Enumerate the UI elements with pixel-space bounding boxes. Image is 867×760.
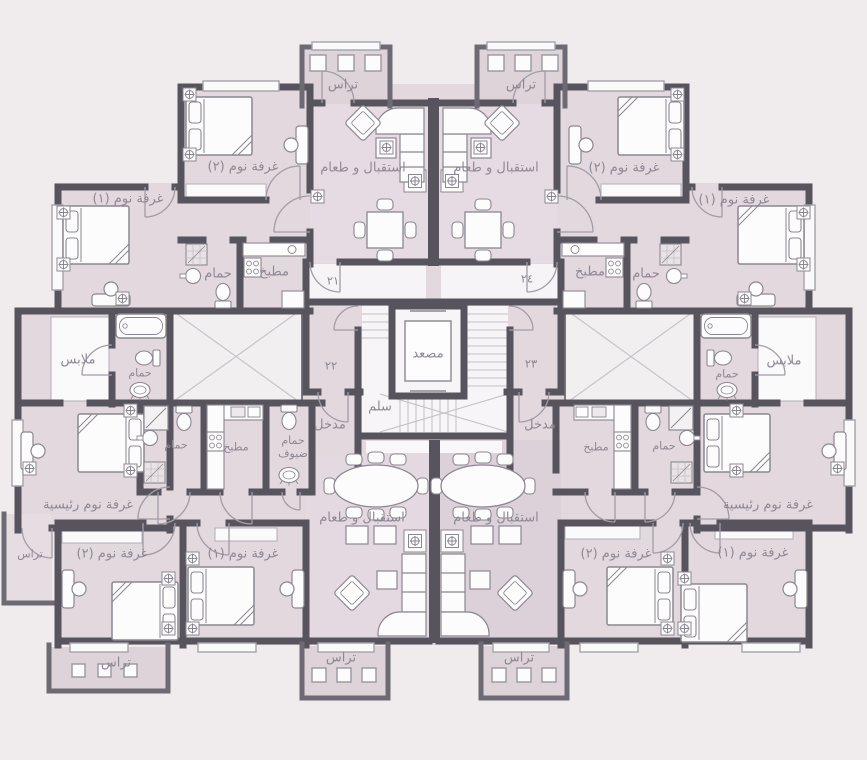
room-label-stairs: سلم: [368, 401, 392, 414]
room-label-kitchen-unit23: مطبخ: [583, 442, 608, 453]
room-label-masterbath-unit23: حمام: [715, 369, 738, 380]
room-label-terrace-bottom-center-right: تراس: [504, 652, 534, 665]
room-label-dressing-unit22: ملابس: [61, 354, 96, 367]
room-label-kitchen-unit24: مطبخ: [575, 266, 605, 279]
floor-plan-page: تراس تراس غرفة نوم (٢) غرفة نوم (١) استق…: [0, 0, 867, 760]
unit-number-24: ٢٤: [521, 273, 533, 285]
room-label-guestbath-unit22: حمام ضيوف: [269, 434, 317, 460]
room-label-terrace-bottom-center-left: تراس: [326, 652, 356, 665]
divider-wall-bottom: [429, 440, 440, 643]
room-label-bedroom1-unit22: غرفة نوم (١): [208, 548, 279, 561]
divider-wall-top: [428, 98, 439, 266]
room-label-bath-unit22: حمام: [164, 440, 187, 451]
room-label-bedroom2-unit22: غرفة نوم (٢): [77, 548, 148, 561]
room-label-bedroom1-unit21: غرفة نوم (١): [93, 193, 164, 206]
room-label-dressing-unit23: ملابس: [767, 355, 802, 368]
room-label-bath-unit21: حمام: [204, 268, 232, 281]
light-shaft-right: [565, 309, 697, 404]
room-label-elevator: مصعد: [412, 348, 443, 361]
light-shaft-left: [170, 309, 302, 404]
room-label-terrace-top-right: تراس: [506, 79, 536, 92]
room-label-masterbath-unit22: حمام: [128, 368, 151, 379]
room-label-entrance-unit22: مدخل: [314, 419, 346, 432]
room-label-bath-unit23: حمام: [652, 441, 675, 452]
room-label-reception-unit23: استقبال و طعام: [453, 512, 539, 525]
room-label-master-unit22: غرفة نوم رئيسية: [43, 499, 133, 512]
room-label-kitchen-unit21: مطبخ: [259, 266, 289, 279]
room-label-reception-unit24: استقبال و طعام: [453, 162, 539, 175]
room-label-kitchen-unit22: مطبخ: [223, 442, 248, 453]
room-label-master-unit23: غرفة نوم رئيسية: [723, 499, 813, 512]
room-label-bedroom1-unit23: غرفة نوم (١): [718, 547, 789, 560]
room-label-terrace-top-left: تراس: [328, 79, 358, 92]
room-label-reception-unit21: استقبال و طعام: [320, 162, 406, 175]
room-label-bath-unit24: حمام: [632, 268, 660, 281]
hall-21-floor: [308, 264, 426, 300]
room-label-entrance-unit23: مدخل: [524, 419, 556, 432]
unit-number-21: ٢١: [327, 275, 339, 287]
room-label-terrace-side-left: تراس: [17, 549, 43, 560]
room-label-bedroom2-unit23: غرفة نوم (٢): [581, 548, 652, 561]
room-label-reception-unit22: استقبال و طعام: [319, 512, 405, 525]
unit-number-23: ٢٣: [525, 358, 537, 370]
unit-number-22: ٢٢: [325, 360, 337, 372]
hall-24-floor: [441, 264, 559, 300]
room-label-terrace-bottom-left: تراس: [101, 657, 131, 670]
room-label-bedroom2-unit21: غرفة نوم (٢): [208, 161, 279, 174]
room-label-bedroom1-unit24: غرفة نوم (١): [699, 194, 770, 207]
room-label-bedroom2-unit24: غرفة نوم (٢): [589, 162, 660, 175]
